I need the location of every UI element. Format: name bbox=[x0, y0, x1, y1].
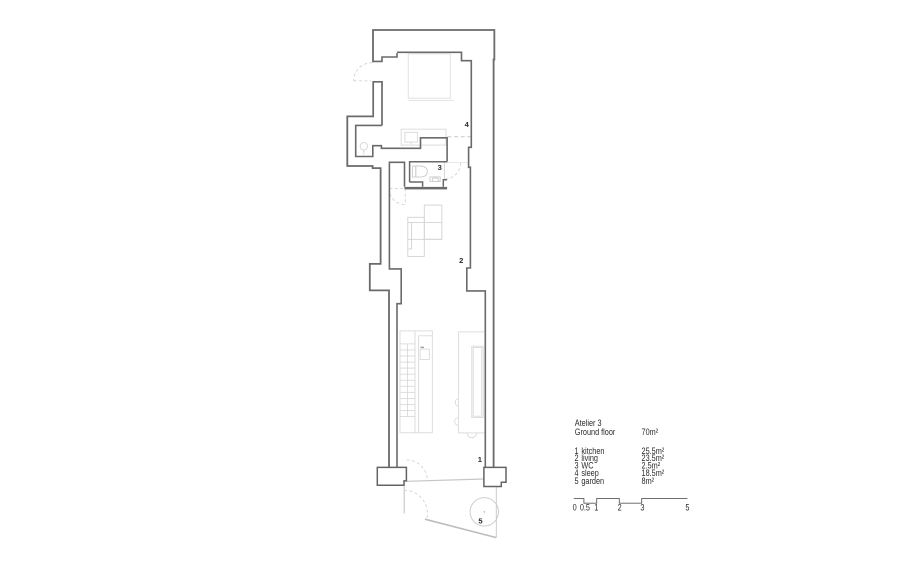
svg-text:0.5: 0.5 bbox=[580, 503, 591, 513]
svg-text:5: 5 bbox=[685, 503, 690, 513]
svg-text:8m²: 8m² bbox=[642, 477, 655, 487]
svg-text:70m²: 70m² bbox=[642, 428, 659, 438]
svg-text:0: 0 bbox=[573, 503, 578, 513]
svg-text:Ground floor: Ground floor bbox=[575, 428, 616, 438]
svg-text:5: 5 bbox=[575, 477, 580, 487]
svg-text:garden: garden bbox=[581, 477, 604, 487]
svg-text:3: 3 bbox=[640, 503, 645, 513]
svg-text:2: 2 bbox=[618, 503, 623, 513]
svg-text:1: 1 bbox=[594, 503, 599, 513]
svg-text:3: 3 bbox=[438, 163, 442, 172]
svg-text:2: 2 bbox=[459, 256, 463, 265]
